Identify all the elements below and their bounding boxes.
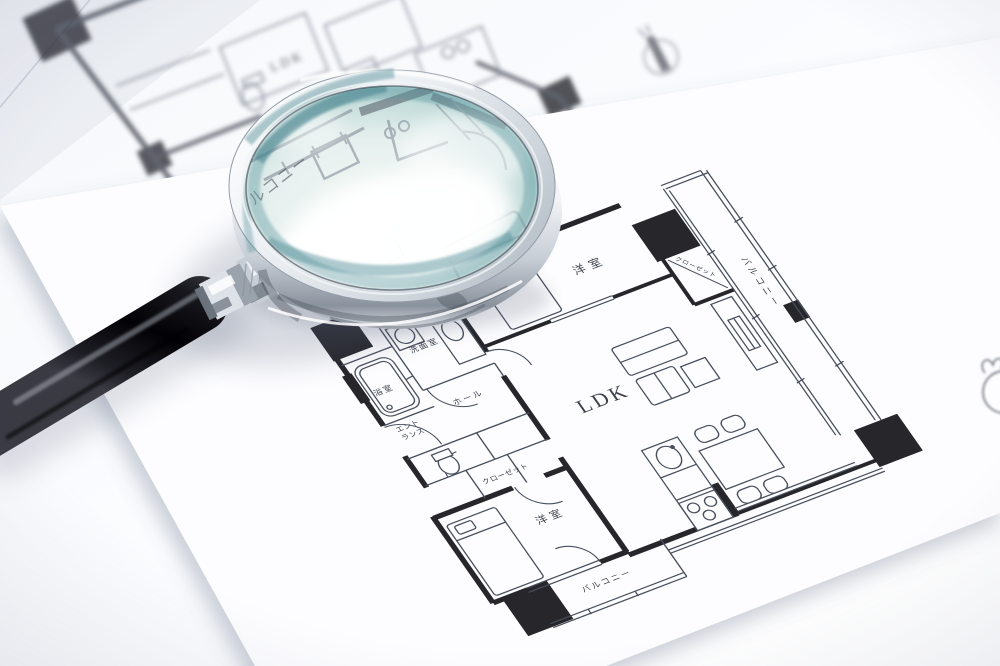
photo-stage: LDK: [0, 0, 1000, 666]
vignette-overlay: [0, 0, 1000, 666]
photo-canvas: LDK: [0, 0, 1000, 666]
